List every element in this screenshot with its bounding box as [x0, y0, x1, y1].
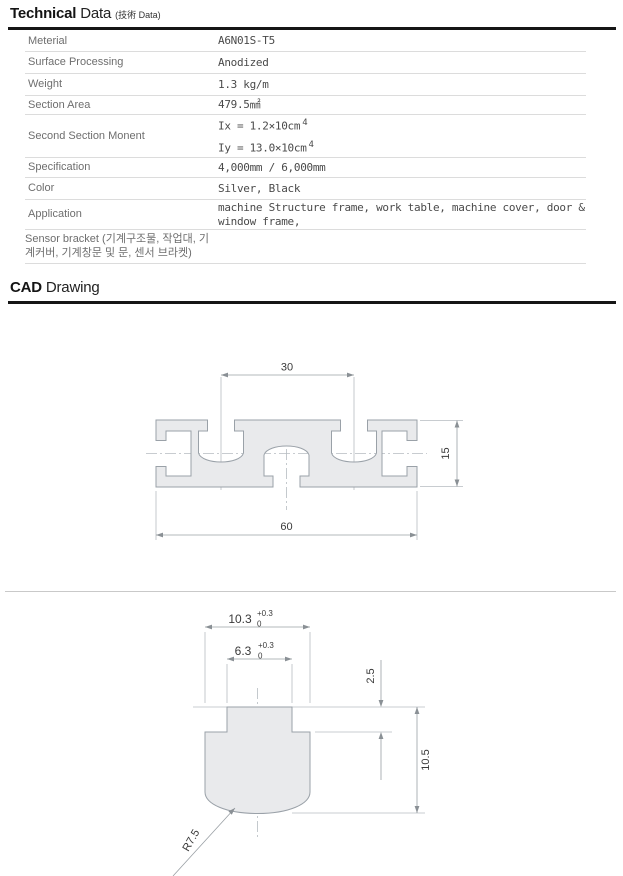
- row-value: 4,000mm / 6,000mm: [218, 161, 586, 175]
- table-row-application: Application machine Structure frame, wor…: [25, 200, 586, 230]
- moment-ix: Ix = 1.2×10cm4: [218, 114, 586, 136]
- row-label: Meterial: [25, 35, 218, 48]
- dim-outer-tol-upper: +0.3: [257, 609, 273, 618]
- profile-cross-section-drawing: 30 60 15: [0, 330, 623, 591]
- row-value: machine Structure frame, work table, mac…: [218, 201, 586, 228]
- table-row-second-section-moment: Second Section Monent Ix = 1.2×10cm4 Iy …: [25, 115, 586, 158]
- row-value: Silver, Black: [218, 182, 586, 196]
- row-label: Surface Processing: [25, 56, 218, 69]
- row-label: Weight: [25, 78, 218, 91]
- row-label: Color: [25, 182, 218, 195]
- row-label: Specification: [25, 161, 218, 174]
- row-value: 479.5㎟: [218, 98, 586, 112]
- dim-lip-depth-label: 2.5: [365, 668, 377, 683]
- dim-top-width-label: 30: [281, 362, 293, 374]
- heading-rest: Data: [76, 5, 111, 22]
- slot-detail-drawing: 10.3 +0.3 0 6.3 +0.3 0 2.5 10: [0, 592, 623, 876]
- row-label: Application: [25, 208, 218, 221]
- table-row: Meterial A6N01S-T5: [25, 31, 586, 52]
- dimension-opening-width: 6.3 +0.3 0: [227, 641, 292, 703]
- table-row: Specification 4,000mm / 6,000mm: [25, 158, 586, 178]
- dim-radius-label: R7.5: [180, 827, 202, 853]
- heading-bold: CAD: [10, 279, 42, 296]
- dim-outer-width-label: 10.3: [228, 612, 252, 626]
- dimension-top-width: 30: [221, 362, 354, 378]
- row-value: 1.3 kg/m: [218, 78, 586, 92]
- dim-opening-width-label: 6.3: [235, 644, 252, 658]
- row-value: Ix = 1.2×10cm4 Iy = 13.0×10cm4: [218, 114, 586, 157]
- dimension-radius: R7.5: [173, 808, 235, 876]
- row-value: A6N01S-T5: [218, 34, 586, 48]
- moment-iy-exponent: 4: [309, 140, 314, 150]
- dimension-bottom-width: 60: [156, 491, 417, 540]
- slot-cavity-outline: [205, 707, 310, 814]
- row-label: Second Section Monent: [25, 130, 218, 143]
- dim-bottom-width-label: 60: [280, 521, 292, 533]
- table-row: Surface Processing Anodized: [25, 52, 586, 74]
- heading-subtitle: (技術 Data): [115, 10, 161, 20]
- table-row: Section Area 479.5㎟: [25, 96, 586, 115]
- technical-data-table: Meterial A6N01S-T5 Surface Processing An…: [25, 31, 586, 264]
- table-row: Weight 1.3 kg/m: [25, 74, 586, 96]
- dim-total-depth-label: 10.5: [420, 749, 432, 770]
- sensor-line1: Sensor bracket (기계구조물, 작업대, 기: [25, 232, 586, 246]
- technical-data-heading: Technical Data(技術 Data): [8, 2, 616, 30]
- moment-iy: Iy = 13.0×10cm4: [218, 136, 586, 158]
- dimension-total-depth: 10.5: [292, 707, 432, 813]
- heading-bold: Technical: [10, 5, 76, 22]
- heading-rest: Drawing: [42, 279, 100, 296]
- cad-drawing-heading: CAD Drawing: [8, 276, 616, 304]
- table-row-sensor-bracket: Sensor bracket (기계구조물, 작업대, 기 계커버, 기계창문 …: [25, 230, 586, 264]
- dim-opening-tol-lower: 0: [258, 652, 263, 661]
- table-row: Color Silver, Black: [25, 178, 586, 200]
- dimension-lip-depth: 2.5: [315, 660, 392, 780]
- dim-height-label: 15: [440, 447, 452, 459]
- row-label: Section Area: [25, 99, 218, 112]
- application-line1: machine Structure frame, work table, mac…: [218, 201, 586, 215]
- datasheet-page: Technical Data(技術 Data) Meterial A6N01S-…: [0, 0, 623, 876]
- dim-opening-tol-upper: +0.3: [258, 641, 274, 650]
- dim-outer-tol-lower: 0: [257, 620, 262, 629]
- moment-ix-exponent: 4: [302, 118, 307, 128]
- application-line2: window frame,: [218, 215, 586, 229]
- sensor-line2: 계커버, 기계창문 및 문, 센서 브라켓): [25, 246, 586, 260]
- row-value: Anodized: [218, 56, 586, 70]
